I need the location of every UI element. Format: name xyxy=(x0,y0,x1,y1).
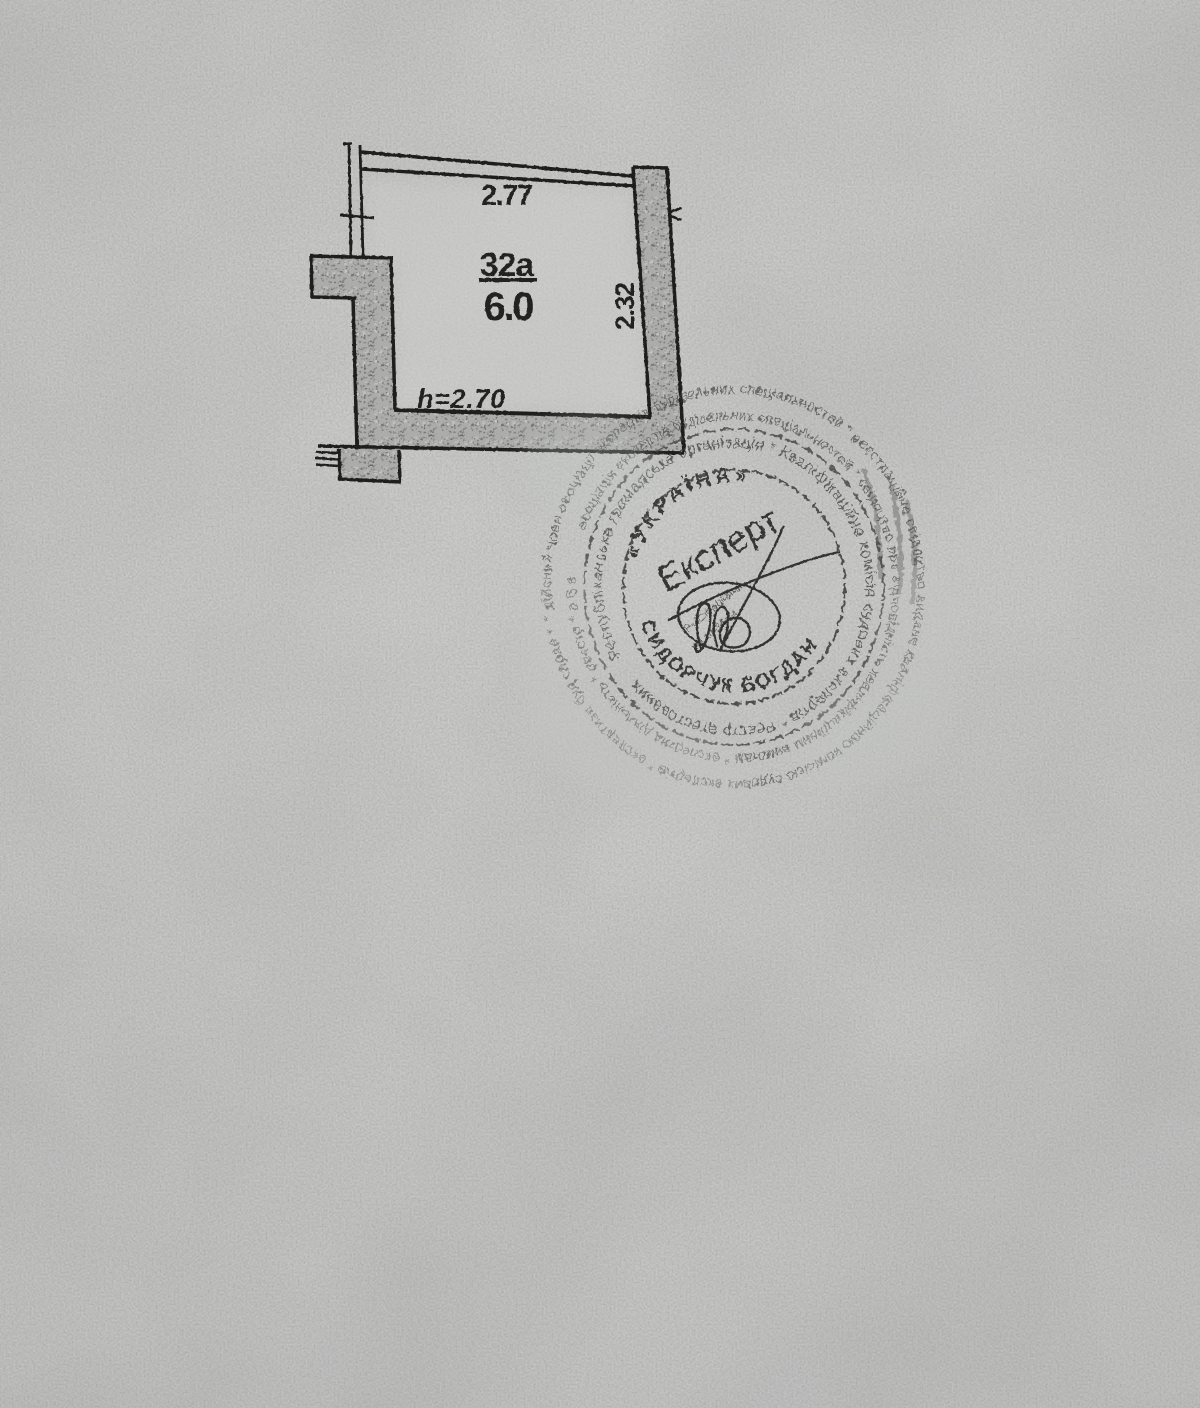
svg-text:6.0: 6.0 xyxy=(484,285,535,329)
svg-text:32a: 32a xyxy=(480,246,535,283)
svg-text:2.77: 2.77 xyxy=(481,180,533,212)
svg-text:h=2.70: h=2.70 xyxy=(417,384,505,414)
svg-text:2.32: 2.32 xyxy=(610,282,640,330)
